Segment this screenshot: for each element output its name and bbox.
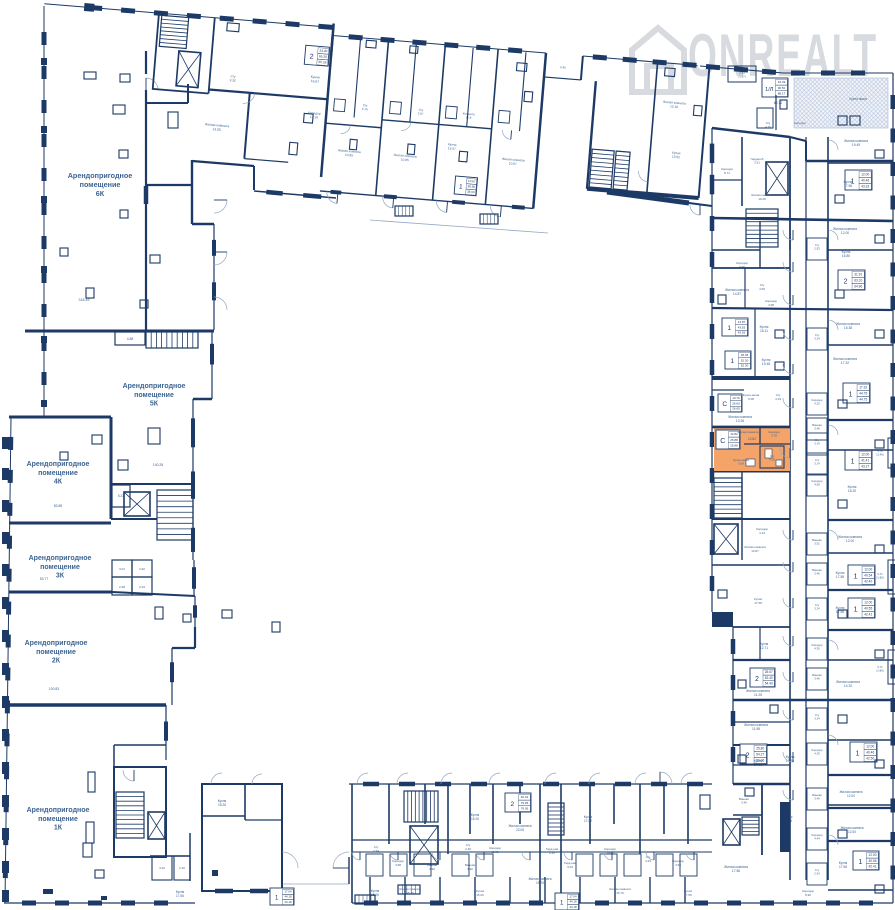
svg-text:25.57: 25.57	[765, 670, 773, 674]
svg-text:318.49: 318.49	[79, 298, 90, 302]
svg-text:Кухня19.48: Кухня19.48	[762, 358, 771, 366]
svg-text:25.80: 25.80	[756, 746, 764, 750]
svg-text:12.00: 12.00	[861, 172, 869, 176]
svg-text:1: 1	[849, 392, 853, 399]
svg-text:44.18: 44.18	[570, 900, 577, 904]
svg-text:3.01: 3.01	[119, 567, 125, 571]
svg-text:Кухня12.71: Кухня12.71	[760, 642, 769, 650]
svg-text:2: 2	[844, 279, 848, 286]
svg-text:12.00: 12.00	[869, 853, 877, 857]
svg-text:79.95: 79.95	[521, 807, 529, 811]
svg-text:79.95: 79.95	[521, 801, 529, 805]
svg-text:26.65: 26.65	[732, 407, 740, 411]
svg-text:Кухня13.52: Кухня13.52	[671, 151, 680, 160]
svg-text:Кухня ниша: Кухня ниша	[849, 97, 867, 101]
svg-text:31.91: 31.91	[854, 272, 862, 276]
svg-text:С: С	[720, 438, 725, 445]
svg-text:4.20: 4.20	[159, 866, 165, 870]
svg-text:3.45: 3.45	[560, 65, 566, 69]
svg-text:52.30: 52.30	[741, 358, 749, 362]
svg-text:3.33(1.67): 3.33(1.67)	[738, 71, 745, 79]
svg-text:52.30: 52.30	[741, 364, 749, 368]
svg-text:42.41: 42.41	[864, 612, 872, 616]
svg-text:65.26: 65.26	[319, 54, 328, 59]
svg-text:18.36: 18.36	[741, 353, 749, 357]
svg-text:43.27: 43.27	[861, 464, 869, 468]
svg-text:41.41: 41.41	[861, 458, 869, 462]
svg-text:Кухня17.58: Кухня17.58	[754, 597, 762, 605]
svg-text:Кухня16.67: Кухня16.67	[310, 75, 320, 84]
svg-text:17.04: 17.04	[285, 890, 292, 894]
svg-text:2.46: 2.46	[179, 866, 185, 870]
svg-text:42.41: 42.41	[869, 865, 877, 869]
svg-text:42.50: 42.50	[866, 756, 874, 760]
svg-text:25.88: 25.88	[730, 438, 738, 442]
svg-text:1/Л: 1/Л	[765, 87, 774, 93]
svg-text:17.04: 17.04	[570, 895, 577, 899]
svg-text:12.00: 12.00	[864, 600, 872, 604]
svg-text:54.40: 54.40	[765, 682, 773, 686]
svg-text:83.85: 83.85	[54, 504, 63, 508]
svg-text:2.92: 2.92	[139, 567, 145, 571]
svg-text:44.75: 44.75	[859, 391, 867, 395]
svg-text:25.88: 25.88	[730, 444, 738, 448]
svg-text:40.55: 40.55	[864, 606, 872, 610]
svg-text:Кухня17.82: Кухня17.82	[584, 815, 593, 823]
svg-text:54.27: 54.27	[756, 752, 764, 756]
svg-text:Кухня17.56: Кухня17.56	[176, 890, 185, 898]
svg-text:1: 1	[858, 859, 862, 866]
svg-text:100.83: 100.83	[49, 687, 59, 691]
svg-text:Кухня13.47: Кухня13.47	[447, 142, 456, 151]
svg-text:14.87: 14.87	[738, 320, 746, 324]
svg-text:24.40: 24.40	[319, 49, 328, 54]
svg-text:42.40: 42.40	[864, 579, 872, 583]
svg-text:Кухня17.56: Кухня17.56	[684, 889, 692, 897]
svg-text:40.46: 40.46	[866, 750, 874, 754]
svg-text:С/у3.32: С/у3.32	[229, 74, 236, 83]
svg-text:4.88: 4.88	[127, 337, 134, 341]
svg-text:64.96: 64.96	[854, 284, 862, 288]
svg-text:Кухня17.56: Кухня17.56	[844, 180, 853, 188]
svg-text:С: С	[722, 401, 727, 408]
svg-text:1: 1	[854, 607, 858, 614]
svg-text:Коридор: Коридор	[794, 121, 806, 125]
svg-text:12.82: 12.82	[748, 437, 756, 441]
svg-text:26.65: 26.65	[732, 401, 740, 405]
svg-text:96.50: 96.50	[778, 86, 786, 90]
svg-text:Кухня17.58: Кухня17.58	[836, 571, 845, 579]
svg-text:1: 1	[730, 358, 734, 365]
svg-text:1: 1	[727, 325, 731, 332]
svg-text:17.32: 17.32	[859, 385, 867, 389]
svg-text:40.46: 40.46	[861, 178, 869, 182]
svg-text:1: 1	[851, 459, 855, 466]
svg-text:Кухня15.26: Кухня15.26	[476, 889, 484, 897]
svg-text:2: 2	[510, 801, 514, 808]
svg-text:44.18: 44.18	[570, 905, 577, 909]
svg-text:1: 1	[854, 574, 858, 581]
svg-text:Кухня14.09: Кухня14.09	[754, 759, 763, 767]
svg-text:43.55: 43.55	[738, 331, 746, 335]
svg-text:53.77: 53.77	[40, 577, 49, 581]
svg-text:12.00: 12.00	[864, 567, 872, 571]
svg-text:Кухня16.80: Кухня16.80	[842, 250, 851, 258]
svg-text:43.55: 43.55	[738, 325, 746, 329]
svg-text:52.40: 52.40	[765, 676, 773, 680]
svg-text:12.00: 12.00	[861, 452, 869, 456]
svg-text:2.48: 2.48	[119, 585, 125, 589]
svg-text:44.75: 44.75	[859, 397, 867, 401]
svg-text:38.90: 38.90	[467, 190, 475, 195]
svg-text:44.18: 44.18	[285, 895, 292, 899]
svg-text:40.55: 40.55	[869, 859, 877, 863]
svg-text:2: 2	[309, 54, 314, 61]
svg-text:Кухня16.20: Кухня16.20	[848, 485, 857, 493]
svg-text:38.90: 38.90	[467, 184, 475, 189]
svg-text:Кухня15.26: Кухня15.26	[471, 813, 480, 821]
svg-text:2.04: 2.04	[139, 585, 145, 589]
svg-text:10.76: 10.76	[732, 396, 740, 400]
svg-text:40.42: 40.42	[521, 795, 529, 799]
svg-text:Кухня15.26: Кухня15.26	[218, 799, 227, 807]
svg-text:44.18: 44.18	[285, 900, 292, 904]
svg-text:Жилая комната: Жилая комната	[738, 430, 759, 434]
svg-text:140.28: 140.28	[153, 463, 163, 467]
svg-text:65.26: 65.26	[318, 60, 327, 65]
svg-text:40.54: 40.54	[864, 573, 872, 577]
svg-text:12.00: 12.00	[866, 744, 874, 748]
svg-text:Кухня17.58: Кухня17.58	[839, 861, 848, 869]
svg-text:3.71(1.86): 3.71(1.86)	[876, 665, 883, 673]
svg-text:43.33: 43.33	[861, 184, 869, 188]
svg-text:3.71(1.86): 3.71(1.86)	[876, 572, 883, 580]
svg-text:63.10: 63.10	[854, 278, 862, 282]
svg-text:Кухня16.11: Кухня16.11	[760, 325, 769, 333]
svg-text:88.17: 88.17	[778, 92, 786, 96]
svg-text:19.49: 19.49	[778, 80, 786, 84]
svg-text:69.72: 69.72	[774, 101, 783, 105]
svg-text:1: 1	[856, 751, 860, 758]
svg-text:10.67: 10.67	[468, 179, 476, 184]
svg-text:2: 2	[755, 676, 759, 683]
